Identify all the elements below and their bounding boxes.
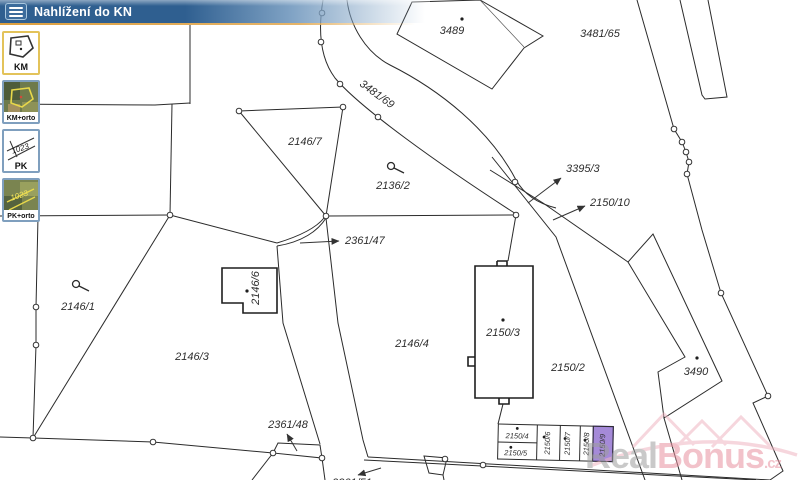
parcel-label-2150-10: 2150/10 bbox=[589, 197, 631, 209]
parcel-boundaries bbox=[0, 0, 783, 480]
svg-text:KM+orto: KM+orto bbox=[7, 115, 36, 122]
layer-button-km[interactable]: KM bbox=[2, 31, 40, 75]
header-accent-line bbox=[0, 23, 420, 25]
watermark-text: RealBonus.cz bbox=[585, 435, 782, 476]
parcel-label-3489: 3489 bbox=[440, 25, 464, 37]
parcel-label-2146-6: 2146/6 bbox=[250, 270, 262, 306]
parcel-label-2146-7: 2146/7 bbox=[287, 136, 323, 148]
app-title: Nahlížení do KN bbox=[34, 0, 132, 23]
svg-text:PK: PK bbox=[15, 161, 28, 171]
parcel-label-2361-47: 2361/47 bbox=[344, 235, 386, 247]
hamburger-icon bbox=[9, 7, 23, 9]
parcel-label-3490: 3490 bbox=[684, 366, 709, 378]
parcel-label-2150-4: 2150/4 bbox=[505, 431, 529, 441]
parcel-definition-dots bbox=[245, 17, 698, 359]
km-map-icon: KM bbox=[4, 33, 38, 73]
parcel-label-2150-7: 2150/7 bbox=[563, 431, 573, 456]
km-orto-map-icon: KM+orto bbox=[4, 82, 38, 122]
parcel-label-3395-3: 3395/3 bbox=[566, 163, 601, 175]
svg-text:PK+orto: PK+orto bbox=[7, 213, 34, 220]
parcel-label-2150-5: 2150/5 bbox=[503, 448, 528, 458]
layer-toolbar: KM KM+orto 1023 PK bbox=[2, 31, 40, 222]
landuse-loop-symbols bbox=[73, 163, 405, 292]
app-window: 3489 3481/65 3481/69 2146/7 2136/2 3395/… bbox=[0, 0, 800, 480]
watermark: RealBonus.cz bbox=[585, 414, 797, 476]
parcel-label-2146-4: 2146/4 bbox=[394, 338, 429, 350]
svg-text:KM: KM bbox=[14, 62, 28, 72]
parcel-label-3481-65: 3481/65 bbox=[580, 28, 621, 40]
pk-orto-map-icon: 1023 PK+orto bbox=[4, 180, 38, 220]
parcel-label-2146-1: 2146/1 bbox=[60, 301, 95, 313]
parcel-label-3481-69: 3481/69 bbox=[357, 78, 396, 111]
label-leader-arrows bbox=[287, 178, 585, 475]
parcel-label-2361-48: 2361/48 bbox=[267, 419, 309, 431]
layer-button-pk-orto[interactable]: 1023 PK+orto bbox=[2, 178, 40, 222]
layer-button-km-orto[interactable]: KM+orto bbox=[2, 80, 40, 124]
parcel-label-2150-2: 2150/2 bbox=[550, 362, 585, 374]
parcel-label-2150-6: 2150/6 bbox=[543, 431, 553, 456]
layer-button-pk[interactable]: 1023 PK bbox=[2, 129, 40, 173]
parcel-label-2150-3: 2150/3 bbox=[485, 327, 521, 339]
map-canvas[interactable]: 3489 3481/65 3481/69 2146/7 2136/2 3395/… bbox=[0, 0, 800, 480]
parcel-label-2136-2: 2136/2 bbox=[375, 180, 410, 192]
parcel-label-2146-3: 2146/3 bbox=[174, 351, 210, 363]
menu-button[interactable] bbox=[5, 3, 27, 20]
pk-map-icon: 1023 PK bbox=[4, 131, 38, 171]
